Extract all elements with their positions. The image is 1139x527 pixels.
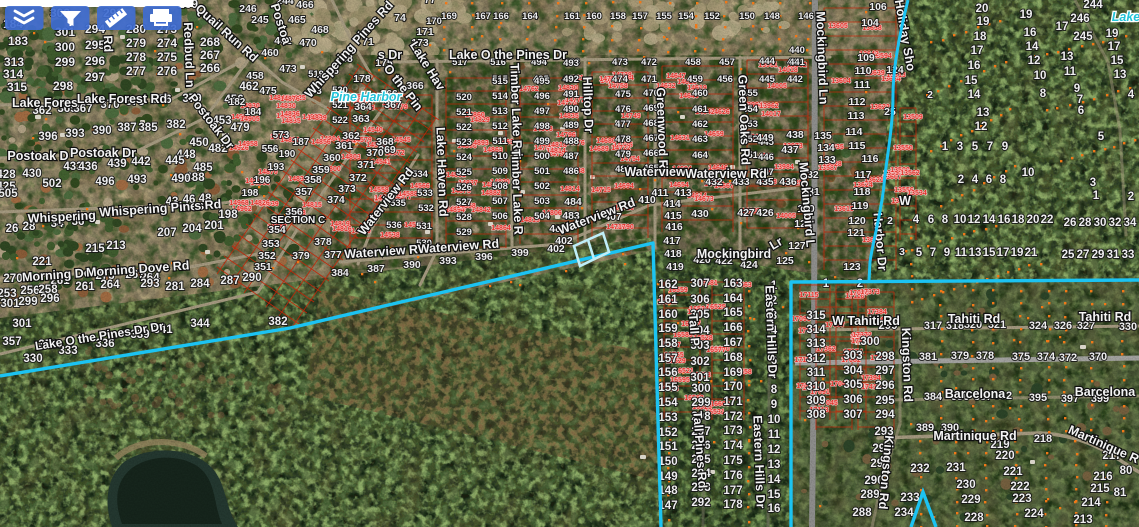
svg-text:14893: 14893 bbox=[469, 140, 489, 147]
svg-text:520: 520 bbox=[456, 92, 472, 103]
svg-text:509: 509 bbox=[492, 166, 508, 177]
svg-text:215: 215 bbox=[85, 243, 105, 255]
svg-text:Hilltop Dr: Hilltop Dr bbox=[580, 77, 596, 134]
svg-text:305: 305 bbox=[843, 379, 863, 391]
svg-text:121: 121 bbox=[847, 227, 865, 239]
svg-text:20: 20 bbox=[1027, 214, 1040, 226]
svg-text:Pine Harbor: Pine Harbor bbox=[331, 90, 403, 104]
svg-text:14815: 14815 bbox=[302, 202, 322, 209]
svg-text:77: 77 bbox=[424, 0, 436, 6]
svg-text:330: 330 bbox=[23, 353, 42, 365]
svg-text:300: 300 bbox=[860, 336, 879, 348]
svg-text:279: 279 bbox=[126, 36, 146, 50]
svg-text:290: 290 bbox=[242, 272, 261, 284]
svg-text:176: 176 bbox=[723, 470, 742, 482]
svg-text:311: 311 bbox=[807, 367, 826, 379]
svg-text:462: 462 bbox=[692, 119, 708, 130]
svg-text:8: 8 bbox=[1040, 88, 1047, 100]
svg-text:155: 155 bbox=[658, 382, 678, 394]
svg-text:445: 445 bbox=[165, 155, 185, 167]
svg-text:171: 171 bbox=[723, 396, 743, 408]
svg-text:295: 295 bbox=[875, 395, 895, 407]
svg-text:379: 379 bbox=[292, 250, 310, 262]
svg-text:522: 522 bbox=[456, 122, 472, 133]
svg-text:11: 11 bbox=[1064, 66, 1077, 78]
svg-text:266: 266 bbox=[200, 61, 220, 75]
svg-text:426: 426 bbox=[756, 207, 774, 219]
svg-text:437: 437 bbox=[781, 144, 799, 156]
svg-text:479: 479 bbox=[230, 122, 249, 134]
svg-text:278: 278 bbox=[126, 50, 146, 64]
svg-text:4: 4 bbox=[913, 214, 920, 226]
svg-text:151: 151 bbox=[658, 441, 678, 453]
svg-text:393: 393 bbox=[439, 255, 457, 267]
svg-text:112: 112 bbox=[849, 96, 866, 108]
svg-text:293: 293 bbox=[140, 278, 159, 290]
svg-text:115: 115 bbox=[849, 140, 866, 152]
svg-text:Waterview Rd: Waterview Rd bbox=[685, 167, 767, 181]
svg-text:154: 154 bbox=[658, 397, 678, 409]
svg-text:221: 221 bbox=[1003, 466, 1023, 478]
svg-text:264: 264 bbox=[100, 279, 120, 291]
svg-text:Tahiti Rd: Tahiti Rd bbox=[1079, 310, 1132, 324]
svg-text:215: 215 bbox=[1090, 483, 1110, 495]
svg-text:10: 10 bbox=[1034, 70, 1047, 82]
svg-text:17373: 17373 bbox=[860, 289, 880, 296]
svg-text:477: 477 bbox=[615, 119, 631, 130]
svg-text:300: 300 bbox=[55, 40, 75, 54]
svg-text:436: 436 bbox=[78, 161, 97, 173]
svg-text:230: 230 bbox=[956, 479, 975, 491]
svg-text:14673: 14673 bbox=[694, 196, 714, 203]
svg-text:196: 196 bbox=[254, 175, 271, 186]
svg-text:162: 162 bbox=[658, 279, 677, 291]
svg-text:298: 298 bbox=[875, 351, 895, 363]
svg-text:299: 299 bbox=[18, 296, 37, 308]
svg-text:479: 479 bbox=[615, 149, 631, 160]
svg-text:457: 457 bbox=[719, 57, 735, 68]
svg-text:396: 396 bbox=[38, 131, 57, 143]
svg-text:458: 458 bbox=[246, 70, 264, 82]
svg-text:134: 134 bbox=[817, 142, 835, 154]
svg-text:18: 18 bbox=[1012, 214, 1025, 226]
svg-text:232: 232 bbox=[910, 463, 929, 475]
svg-text:125: 125 bbox=[776, 255, 794, 267]
svg-text:513: 513 bbox=[492, 106, 508, 117]
svg-text:123: 123 bbox=[843, 261, 861, 273]
svg-text:13962: 13962 bbox=[759, 103, 779, 110]
svg-text:152: 152 bbox=[704, 11, 720, 22]
svg-text:20: 20 bbox=[976, 3, 989, 15]
svg-text:116: 116 bbox=[862, 153, 879, 165]
svg-text:14538: 14538 bbox=[380, 232, 400, 239]
svg-text:489: 489 bbox=[563, 120, 579, 131]
svg-text:3: 3 bbox=[1090, 177, 1096, 189]
svg-text:503: 503 bbox=[534, 196, 550, 207]
svg-text:441: 441 bbox=[789, 57, 806, 68]
svg-text:304: 304 bbox=[843, 365, 863, 377]
svg-text:490: 490 bbox=[171, 173, 190, 185]
svg-text:6: 6 bbox=[1078, 105, 1084, 117]
svg-text:s Rd: s Rd bbox=[194, 197, 222, 213]
svg-text:164: 164 bbox=[723, 293, 743, 305]
svg-text:14631: 14631 bbox=[670, 135, 690, 142]
svg-text:Redbud Ln: Redbud Ln bbox=[181, 22, 197, 88]
svg-text:440: 440 bbox=[789, 45, 805, 56]
svg-text:14856: 14856 bbox=[311, 139, 331, 146]
svg-text:390: 390 bbox=[403, 259, 421, 271]
svg-text:505: 505 bbox=[0, 188, 18, 200]
svg-text:32: 32 bbox=[1109, 217, 1122, 229]
svg-text:26: 26 bbox=[1064, 217, 1077, 229]
svg-text:8: 8 bbox=[1000, 174, 1007, 186]
svg-text:228: 228 bbox=[964, 512, 984, 524]
svg-text:573: 573 bbox=[273, 130, 290, 141]
svg-text:484: 484 bbox=[564, 196, 582, 208]
svg-text:158: 158 bbox=[610, 11, 626, 22]
svg-text:17: 17 bbox=[1108, 41, 1121, 53]
svg-text:165: 165 bbox=[723, 307, 743, 319]
svg-text:224: 224 bbox=[1024, 508, 1044, 520]
svg-text:15: 15 bbox=[965, 75, 978, 87]
svg-text:13562: 13562 bbox=[900, 170, 920, 177]
svg-text:W Tahiti Rd: W Tahiti Rd bbox=[832, 314, 900, 328]
svg-text:487: 487 bbox=[563, 151, 579, 162]
svg-text:502: 502 bbox=[42, 178, 61, 190]
svg-text:268: 268 bbox=[200, 35, 220, 49]
svg-text:25: 25 bbox=[884, 106, 896, 118]
svg-text:154: 154 bbox=[678, 11, 695, 22]
svg-text:297: 297 bbox=[85, 70, 105, 84]
svg-text:169: 169 bbox=[441, 11, 457, 22]
svg-text:14816: 14816 bbox=[332, 226, 352, 233]
svg-text:178: 178 bbox=[353, 73, 371, 85]
svg-text:416: 416 bbox=[665, 221, 683, 233]
svg-text:74: 74 bbox=[394, 12, 406, 24]
svg-text:2: 2 bbox=[887, 215, 893, 227]
svg-text:14017: 14017 bbox=[761, 111, 781, 118]
svg-text:170: 170 bbox=[723, 381, 742, 393]
svg-text:167: 167 bbox=[475, 11, 491, 22]
svg-text:525: 525 bbox=[456, 167, 473, 178]
svg-text:463: 463 bbox=[692, 134, 708, 145]
svg-text:374: 374 bbox=[327, 194, 345, 206]
svg-text:111: 111 bbox=[854, 79, 871, 91]
svg-text:532: 532 bbox=[418, 203, 434, 214]
svg-text:389: 389 bbox=[916, 422, 934, 434]
svg-text:449: 449 bbox=[756, 132, 774, 144]
svg-text:3: 3 bbox=[957, 141, 963, 153]
svg-text:498: 498 bbox=[534, 121, 550, 132]
svg-text:9: 9 bbox=[944, 247, 950, 259]
svg-text:8: 8 bbox=[942, 214, 949, 226]
svg-text:14958: 14958 bbox=[238, 141, 258, 148]
svg-text:Lake: Lake bbox=[1112, 10, 1139, 24]
svg-text:527: 527 bbox=[456, 197, 472, 208]
svg-text:14826: 14826 bbox=[250, 200, 270, 207]
svg-text:16: 16 bbox=[968, 60, 981, 72]
svg-text:310: 310 bbox=[806, 381, 825, 393]
svg-text:31: 31 bbox=[1107, 249, 1120, 261]
svg-text:213: 213 bbox=[1073, 514, 1092, 526]
svg-text:299: 299 bbox=[691, 397, 710, 409]
svg-text:10: 10 bbox=[1022, 167, 1035, 179]
svg-text:299: 299 bbox=[55, 55, 75, 69]
svg-text:556: 556 bbox=[262, 144, 279, 155]
svg-text:523: 523 bbox=[456, 137, 472, 148]
svg-text:508: 508 bbox=[492, 181, 508, 192]
svg-text:5: 5 bbox=[1098, 131, 1105, 143]
svg-text:382: 382 bbox=[268, 316, 287, 328]
svg-text:374: 374 bbox=[1037, 351, 1056, 363]
svg-text:14715: 14715 bbox=[591, 187, 611, 194]
svg-text:502: 502 bbox=[534, 181, 550, 192]
svg-text:104: 104 bbox=[861, 17, 879, 29]
svg-text:28: 28 bbox=[1079, 217, 1092, 229]
svg-text:81: 81 bbox=[1114, 487, 1127, 499]
svg-text:298: 298 bbox=[53, 79, 73, 93]
svg-text:14839: 14839 bbox=[307, 115, 327, 122]
svg-text:381: 381 bbox=[919, 351, 937, 363]
svg-text:419: 419 bbox=[666, 261, 684, 273]
svg-text:233: 233 bbox=[900, 492, 919, 504]
svg-text:216: 216 bbox=[1093, 471, 1112, 483]
svg-text:244: 244 bbox=[1083, 0, 1103, 11]
svg-text:465: 465 bbox=[288, 14, 306, 26]
svg-text:315: 315 bbox=[7, 80, 27, 94]
svg-text:114: 114 bbox=[846, 126, 863, 138]
svg-text:277: 277 bbox=[126, 64, 146, 78]
svg-text:157: 157 bbox=[632, 11, 648, 22]
svg-text:495: 495 bbox=[534, 76, 551, 87]
svg-text:Barcelona: Barcelona bbox=[945, 387, 1006, 401]
svg-text:W: W bbox=[899, 194, 911, 208]
svg-text:490: 490 bbox=[563, 104, 579, 115]
svg-text:478: 478 bbox=[615, 134, 631, 145]
svg-text:13: 13 bbox=[969, 247, 982, 259]
svg-text:459: 459 bbox=[687, 74, 703, 85]
svg-text:14545: 14545 bbox=[391, 137, 411, 144]
svg-text:507: 507 bbox=[492, 196, 508, 207]
svg-text:229: 229 bbox=[961, 494, 980, 506]
svg-text:511: 511 bbox=[492, 136, 508, 147]
svg-text:166: 166 bbox=[493, 11, 509, 22]
svg-text:486: 486 bbox=[563, 166, 579, 177]
svg-text:475: 475 bbox=[259, 85, 277, 97]
svg-text:13: 13 bbox=[768, 459, 781, 471]
svg-text:276: 276 bbox=[157, 64, 177, 78]
svg-text:198: 198 bbox=[242, 188, 259, 199]
svg-text:314: 314 bbox=[806, 324, 826, 336]
svg-text:357: 357 bbox=[2, 336, 21, 348]
svg-text:14694: 14694 bbox=[614, 183, 634, 190]
svg-text:150: 150 bbox=[658, 456, 677, 468]
svg-text:2: 2 bbox=[927, 89, 933, 101]
svg-text:13984: 13984 bbox=[774, 164, 794, 171]
svg-text:370: 370 bbox=[366, 147, 384, 159]
svg-text:470: 470 bbox=[299, 37, 317, 49]
svg-text:274: 274 bbox=[157, 36, 177, 50]
svg-text:499: 499 bbox=[534, 136, 550, 147]
svg-text:456: 456 bbox=[717, 74, 733, 85]
svg-text:10: 10 bbox=[954, 214, 967, 226]
svg-text:353: 353 bbox=[262, 238, 280, 250]
svg-text:218: 218 bbox=[1034, 433, 1052, 445]
svg-text:375: 375 bbox=[1012, 351, 1030, 363]
svg-text:183: 183 bbox=[8, 34, 28, 48]
svg-text:2: 2 bbox=[958, 174, 964, 186]
svg-text:25: 25 bbox=[1062, 249, 1075, 261]
svg-text:13: 13 bbox=[977, 107, 990, 119]
svg-text:234: 234 bbox=[894, 507, 914, 519]
svg-text:267: 267 bbox=[200, 48, 220, 62]
svg-text:160: 160 bbox=[658, 309, 677, 321]
svg-text:497: 497 bbox=[534, 106, 550, 117]
svg-text:177: 177 bbox=[723, 485, 742, 497]
svg-text:2: 2 bbox=[857, 278, 863, 290]
svg-text:384: 384 bbox=[331, 267, 349, 279]
svg-text:207: 207 bbox=[157, 227, 176, 239]
svg-text:317: 317 bbox=[924, 320, 942, 332]
svg-text:163: 163 bbox=[723, 278, 742, 290]
svg-text:387: 387 bbox=[367, 263, 385, 275]
svg-text:Lake Fores: Lake Fores bbox=[12, 96, 78, 110]
svg-text:460: 460 bbox=[692, 88, 708, 99]
svg-text:372: 372 bbox=[1059, 352, 1077, 364]
svg-text:296: 296 bbox=[875, 380, 894, 392]
svg-text:14814: 14814 bbox=[560, 186, 580, 193]
svg-text:450: 450 bbox=[189, 137, 208, 149]
svg-text:13509: 13509 bbox=[903, 114, 923, 121]
svg-text:7: 7 bbox=[987, 141, 993, 153]
svg-text:307: 307 bbox=[690, 278, 709, 290]
svg-text:466: 466 bbox=[296, 0, 314, 11]
svg-text:22: 22 bbox=[1041, 214, 1054, 226]
svg-text:109: 109 bbox=[857, 52, 875, 64]
svg-text:18: 18 bbox=[974, 31, 987, 43]
svg-text:488: 488 bbox=[563, 136, 579, 147]
svg-text:Barcelona: Barcelona bbox=[1075, 385, 1136, 399]
svg-text:133: 133 bbox=[818, 154, 836, 166]
svg-text:360: 360 bbox=[323, 152, 341, 164]
svg-text:5: 5 bbox=[972, 141, 979, 153]
svg-text:2: 2 bbox=[1128, 191, 1134, 203]
svg-text:261: 261 bbox=[75, 281, 95, 293]
svg-text:245: 245 bbox=[1073, 31, 1093, 43]
svg-text:14836: 14836 bbox=[280, 111, 300, 118]
svg-text:164: 164 bbox=[522, 11, 539, 22]
svg-text:3: 3 bbox=[899, 246, 905, 258]
svg-text:7: 7 bbox=[930, 247, 936, 259]
svg-text:524: 524 bbox=[456, 152, 473, 163]
svg-text:155: 155 bbox=[656, 11, 673, 22]
svg-text:Tahiti Rd: Tahiti Rd bbox=[948, 312, 1001, 326]
svg-text:184: 184 bbox=[245, 107, 262, 118]
svg-text:14876: 14876 bbox=[280, 96, 300, 103]
svg-text:4: 4 bbox=[972, 174, 979, 186]
svg-text:159: 159 bbox=[658, 323, 677, 335]
svg-text:302: 302 bbox=[690, 356, 709, 368]
svg-text:17: 17 bbox=[971, 45, 984, 57]
svg-text:357: 357 bbox=[295, 186, 313, 198]
svg-text:172: 172 bbox=[723, 411, 742, 423]
svg-text:117: 117 bbox=[855, 169, 872, 181]
svg-text:27: 27 bbox=[1077, 249, 1090, 261]
svg-text:Postoak D: Postoak D bbox=[7, 149, 68, 163]
svg-text:533: 533 bbox=[417, 188, 433, 199]
svg-text:362: 362 bbox=[342, 130, 360, 142]
svg-text:10: 10 bbox=[768, 414, 781, 426]
svg-text:SECTION C: SECTION C bbox=[271, 215, 325, 226]
svg-text:14: 14 bbox=[768, 474, 781, 486]
svg-text:359: 359 bbox=[312, 164, 330, 176]
svg-text:313: 313 bbox=[806, 338, 825, 350]
svg-text:288: 288 bbox=[852, 507, 872, 519]
svg-text:80: 80 bbox=[1120, 465, 1133, 477]
svg-text:14: 14 bbox=[968, 89, 981, 101]
svg-text:14717: 14717 bbox=[606, 224, 626, 231]
svg-text:430: 430 bbox=[22, 168, 41, 180]
svg-text:472: 472 bbox=[641, 57, 657, 68]
svg-text:15: 15 bbox=[983, 247, 996, 259]
svg-text:12: 12 bbox=[975, 121, 988, 133]
svg-text:193: 193 bbox=[268, 162, 285, 173]
svg-text:169: 169 bbox=[723, 367, 742, 379]
svg-text:270: 270 bbox=[3, 273, 22, 285]
svg-text:19: 19 bbox=[977, 16, 990, 28]
svg-text:382: 382 bbox=[166, 119, 185, 131]
svg-text:Rd: Rd bbox=[101, 35, 116, 52]
svg-text:462: 462 bbox=[239, 81, 258, 93]
svg-text:514: 514 bbox=[492, 91, 509, 102]
svg-text:8: 8 bbox=[771, 384, 778, 396]
svg-text:307: 307 bbox=[843, 409, 862, 421]
svg-text:Lake Forest Rd: Lake Forest Rd bbox=[77, 92, 167, 106]
svg-text:156: 156 bbox=[658, 367, 677, 379]
svg-text:245: 245 bbox=[251, 14, 269, 26]
svg-text:315: 315 bbox=[806, 310, 826, 322]
svg-text:6: 6 bbox=[928, 214, 934, 226]
svg-text:s Dr: s Dr bbox=[378, 48, 402, 62]
svg-text:522: 522 bbox=[332, 115, 348, 126]
svg-text:246: 246 bbox=[1070, 13, 1089, 25]
svg-text:436: 436 bbox=[779, 176, 797, 188]
svg-text:492: 492 bbox=[563, 74, 579, 85]
svg-text:430: 430 bbox=[691, 208, 709, 220]
svg-text:324: 324 bbox=[1029, 320, 1048, 332]
svg-text:491: 491 bbox=[563, 89, 580, 100]
svg-text:29: 29 bbox=[1092, 249, 1105, 261]
svg-text:16: 16 bbox=[768, 503, 781, 515]
svg-text:118: 118 bbox=[854, 186, 871, 198]
svg-text:1: 1 bbox=[1093, 190, 1100, 202]
svg-text:14: 14 bbox=[1026, 41, 1039, 53]
svg-text:14005: 14005 bbox=[776, 213, 796, 220]
svg-text:Postoak Dr: Postoak Dr bbox=[70, 146, 136, 160]
svg-text:473: 473 bbox=[612, 57, 628, 68]
svg-text:21: 21 bbox=[1025, 247, 1038, 259]
svg-text:222: 222 bbox=[1010, 481, 1029, 493]
svg-text:119: 119 bbox=[852, 200, 869, 212]
svg-text:500: 500 bbox=[534, 151, 550, 162]
svg-text:385: 385 bbox=[138, 122, 158, 134]
svg-text:17: 17 bbox=[997, 247, 1010, 259]
svg-text:387: 387 bbox=[117, 122, 136, 134]
svg-text:146: 146 bbox=[798, 11, 814, 22]
svg-text:14680: 14680 bbox=[596, 138, 616, 145]
svg-text:395: 395 bbox=[1029, 392, 1047, 404]
svg-text:442: 442 bbox=[787, 74, 803, 85]
